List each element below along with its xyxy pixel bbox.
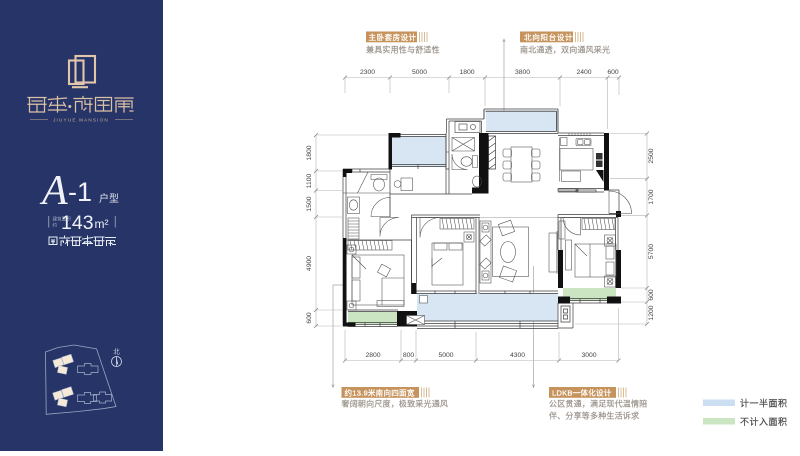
svg-text:800: 800 <box>403 352 415 359</box>
svg-text:143: 143 <box>61 212 94 234</box>
svg-text:约: 约 <box>53 222 58 229</box>
svg-text:2800: 2800 <box>365 352 380 359</box>
svg-text:约13.9米南向四面宽: 约13.9米南向四面宽 <box>345 387 415 397</box>
svg-text:奢阔朝向尺度，极致采光通风: 奢阔朝向尺度，极致采光通风 <box>342 399 449 409</box>
svg-text:LDKB一体化设计: LDKB一体化设计 <box>552 387 612 397</box>
svg-text:m²: m² <box>95 217 109 231</box>
svg-text:不计入面积: 不计入面积 <box>740 416 788 427</box>
svg-text:5000: 5000 <box>412 69 427 76</box>
svg-text:600: 600 <box>306 312 313 324</box>
svg-text:1200: 1200 <box>648 305 655 320</box>
svg-text:JIUYUE MANSION: JIUYUE MANSION <box>53 118 109 123</box>
svg-text:2500: 2500 <box>648 148 655 163</box>
svg-text:4300: 4300 <box>510 352 525 359</box>
svg-text:5700: 5700 <box>648 244 655 259</box>
svg-text:兼具实用性与舒适性: 兼具实用性与舒适性 <box>366 45 440 55</box>
svg-text:2400: 2400 <box>576 69 591 76</box>
svg-text:600: 600 <box>648 289 655 301</box>
svg-text:600: 600 <box>607 69 619 76</box>
svg-text:计一半面积: 计一半面积 <box>740 398 788 409</box>
svg-text:A: A <box>39 168 68 214</box>
svg-text:5000: 5000 <box>438 352 453 359</box>
svg-text:户型: 户型 <box>99 192 119 205</box>
svg-text:1100: 1100 <box>306 173 313 188</box>
svg-text:3000: 3000 <box>581 352 596 359</box>
svg-text:2300: 2300 <box>360 69 375 76</box>
svg-text:公区贯通，满足现代温情陪: 公区贯通，满足现代温情陪 <box>549 399 647 409</box>
svg-text:主卧套房设计: 主卧套房设计 <box>369 32 417 42</box>
svg-text:伴、分享等多种生活诉求: 伴、分享等多种生活诉求 <box>549 411 639 421</box>
svg-text:1700: 1700 <box>648 189 655 204</box>
svg-text:1800: 1800 <box>459 69 474 76</box>
svg-text:4900: 4900 <box>306 256 313 271</box>
svg-text:-1: -1 <box>68 177 92 207</box>
svg-text:3800: 3800 <box>515 69 530 76</box>
svg-text:北向阳台设计: 北向阳台设计 <box>524 32 573 42</box>
svg-text:1500: 1500 <box>306 196 313 211</box>
svg-text:北: 北 <box>113 348 120 356</box>
svg-text:南北通透，双向通风采光: 南北通透，双向通风采光 <box>520 45 610 55</box>
svg-text:1800: 1800 <box>306 145 313 160</box>
